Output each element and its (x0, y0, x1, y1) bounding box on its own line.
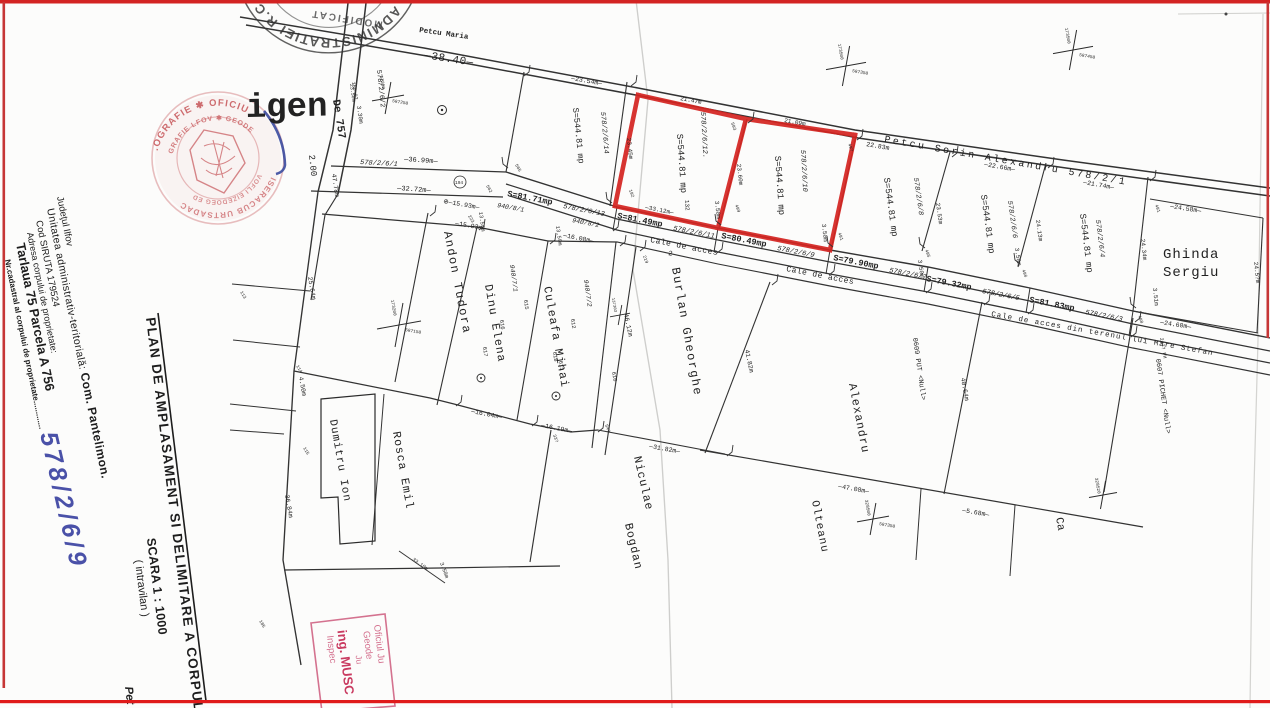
svg-text:3.50m: 3.50m (438, 561, 450, 580)
svg-text:940/7/2: 940/7/2 (582, 279, 593, 307)
svg-text:940/7/1: 940/7/1 (508, 264, 519, 292)
svg-text:578/2/6/12.: 578/2/6/12. (698, 112, 708, 159)
svg-text:578/2/6/9: 578/2/6/9 (34, 429, 93, 572)
svg-text:23.60m: 23.60m (735, 163, 744, 186)
svg-text:S=544.81 mp: S=544.81 mp (978, 194, 996, 254)
svg-text:Andon Tudora: Andon Tudora (440, 230, 474, 335)
svg-text:617: 617 (481, 346, 489, 357)
svg-text:3.50m: 3.50m (713, 200, 722, 219)
svg-text:587350: 587350 (852, 68, 869, 77)
svg-text:S=544.81 mp: S=544.81 mp (772, 156, 786, 216)
svg-text:24.5?m: 24.5?m (1252, 261, 1261, 284)
svg-text:578/2/6/3: 578/2/6/3 (1084, 309, 1123, 324)
svg-text:Olteanu: Olteanu (808, 499, 830, 554)
svg-text:Alexandru: Alexandru (845, 382, 871, 454)
svg-text:4.50m: 4.50m (297, 376, 307, 397)
svg-text:565: 565 (513, 163, 522, 173)
svg-text:578/2/6/6: 578/2/6/6 (1005, 200, 1018, 239)
svg-text:173500: 173500 (1063, 27, 1072, 44)
svg-text:Dumitru Ion: Dumitru Ion (326, 419, 352, 503)
svg-text:25.64m: 25.64m (306, 276, 317, 300)
svg-text:S=79.90mp: S=79.90mp (832, 253, 879, 272)
svg-text:33?: 33? (551, 434, 560, 444)
svg-text:—36.99m—: —36.99m— (403, 156, 439, 166)
svg-text:Ju: Ju (354, 654, 365, 664)
svg-text:0607 PICHET <Null>: 0607 PICHET <Null> (1153, 358, 1171, 434)
svg-text:S=544.81 mp: S=544.81 mp (674, 134, 688, 194)
svg-text:503: 503 (729, 122, 738, 132)
svg-text:328500: 328500 (863, 499, 872, 516)
svg-text:Ghinda: Ghinda (1163, 247, 1219, 263)
svg-text:587250: 587250 (392, 98, 409, 107)
svg-text:587150: 587150 (405, 327, 422, 336)
svg-text:612: 612 (569, 318, 577, 329)
svg-text:PLAN DE AMPLASAMENT SI DELIMIT: PLAN DE AMPLASAMENT SI DELIMITARE A CORP… (143, 317, 206, 708)
svg-text:940/8/2: 940/8/2 (572, 217, 600, 229)
svg-text:Bogdan: Bogdan (621, 522, 644, 571)
svg-text:496: 496 (1020, 269, 1029, 279)
svg-text:2: 2 (667, 250, 673, 259)
svg-text:578/2/6/10: 578/2/6/10 (798, 150, 808, 192)
svg-text:41.82m: 41.82m (743, 349, 755, 373)
svg-text:23.53m: 23.53m (934, 202, 944, 225)
svg-text:S=544.81 mp: S=544.81 mp (1077, 213, 1094, 273)
svg-text:Sergiu: Sergiu (1163, 265, 1219, 281)
svg-text:S=544.81 mp: S=544.81 mp (881, 177, 899, 237)
svg-text:24.13m: 24.13m (1034, 219, 1044, 242)
svg-text:—16.08m—: —16.08m— (562, 232, 595, 245)
svg-text:610: 610 (610, 371, 619, 382)
svg-text:36.84m: 36.84m (283, 494, 294, 518)
svg-text:—16.04m—: —16.04m— (470, 408, 503, 421)
svg-text:194: 194 (455, 180, 463, 186)
svg-text:24.34m: 24.34m (1139, 238, 1148, 261)
svg-text:S=81.83mp: S=81.83mp (1028, 295, 1075, 314)
svg-text:615: 615 (522, 299, 530, 310)
svg-text:495: 495 (923, 249, 932, 259)
svg-text:562: 562 (484, 184, 493, 194)
svg-text:Ca: Ca (1052, 516, 1066, 532)
svg-text:132: 132 (683, 200, 691, 212)
svg-text:328520: 328520 (1093, 477, 1102, 494)
svg-text:587450: 587450 (1079, 52, 1096, 61)
svg-text:3.30m: 3.30m (355, 105, 364, 124)
svg-text:578/2/6/14: 578/2/6/14 (598, 112, 610, 155)
svg-text:—24.58m—: —24.58m— (1169, 203, 1202, 215)
svg-text:113: 113 (238, 290, 247, 300)
svg-text:491: 491 (1153, 204, 1162, 214)
svg-text:―38.40―: ―38.40― (422, 50, 474, 70)
svg-text:219: 219 (641, 255, 650, 265)
svg-text:491: 491 (836, 232, 845, 242)
svg-text:Petcu Maria: Petcu Maria (419, 27, 470, 42)
svg-text:—5.68m—: —5.68m— (961, 507, 990, 519)
svg-text:616: 616 (498, 319, 506, 330)
svg-text:2.00: 2.00 (306, 154, 318, 177)
svg-text:173500: 173500 (836, 43, 845, 60)
svg-text:940/8/1: 940/8/1 (497, 202, 525, 214)
svg-text:igen: igen (246, 89, 328, 128)
svg-text:Niculae: Niculae (630, 455, 655, 512)
svg-text:—47.08m—: —47.08m— (837, 483, 870, 496)
svg-text:578/2/6/4: 578/2/6/4 (1093, 219, 1106, 258)
svg-text:⊕—15.93m—: ⊕—15.93m— (443, 198, 480, 211)
svg-text:33.10m: 33.10m (411, 557, 429, 572)
svg-text:499: 499 (733, 204, 742, 214)
svg-text:587350: 587350 (879, 521, 896, 530)
svg-text:S=79.32mp: S=79.32mp (925, 274, 972, 293)
svg-text:137303: 137303 (610, 298, 617, 313)
svg-text:173200: 173200 (389, 299, 398, 316)
svg-text:115: 115 (301, 446, 310, 456)
svg-text:3.51m: 3.51m (1151, 287, 1160, 306)
svg-text:578/2/6/13: 578/2/6/13 (562, 203, 605, 219)
svg-text:185: 185 (257, 619, 266, 629)
svg-text:Burlan Gheorghe: Burlan Gheorghe (668, 266, 704, 397)
svg-text:0609 PUT <Null>: 0609 PUT <Null> (910, 337, 927, 401)
svg-text:47.78m: 47.78m (330, 173, 340, 197)
svg-text:Rosca Emil: Rosca Emil (389, 430, 416, 510)
svg-text:40.64m: 40.64m (959, 377, 970, 401)
svg-text:192: 192 (627, 189, 636, 199)
svg-text:578/2/6/8: 578/2/6/8 (911, 177, 924, 216)
svg-text:Pet: Pet (122, 686, 136, 706)
svg-text:Inspec: Inspec (324, 635, 338, 664)
svg-text:578/2/6/5: 578/2/6/5 (981, 288, 1020, 303)
svg-text:S=544.81 mp: S=544.81 mp (570, 107, 586, 164)
svg-text:618: 618 (551, 351, 559, 362)
svg-text:Culeafa Mihai: Culeafa Mihai (540, 285, 571, 388)
svg-text:23.50m: 23.50m (348, 83, 356, 102)
svg-text:611: 611 (557, 360, 565, 371)
